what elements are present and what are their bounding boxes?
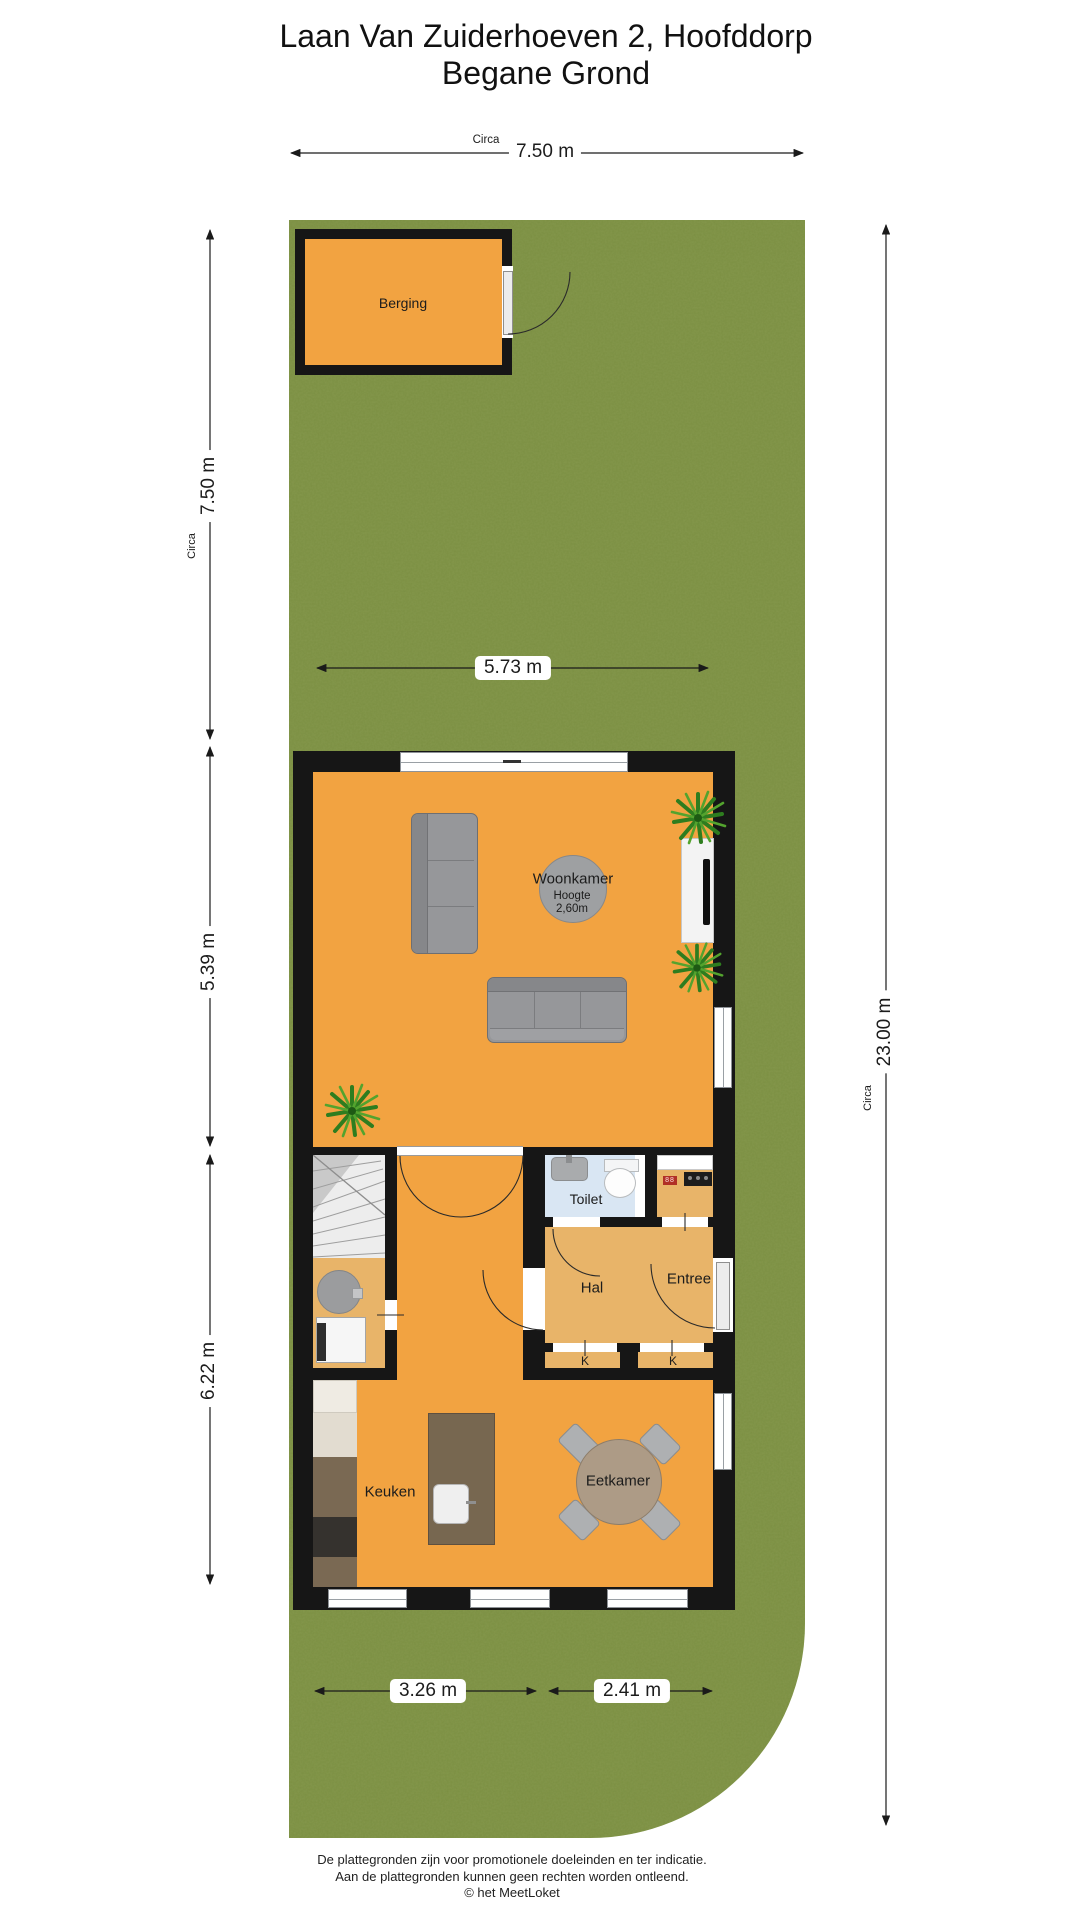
- window-bottom-3: [607, 1589, 688, 1608]
- front-door-leaf: [716, 1262, 730, 1330]
- staircase: [313, 1155, 385, 1258]
- kast-right-door-gap: [640, 1343, 704, 1352]
- sofa-backrest: [488, 978, 626, 992]
- disclaimer-line-1: De plattegronden zijn voor promotionele …: [0, 1852, 1024, 1869]
- kitchen-counter-wood: [313, 1457, 357, 1517]
- room-label-kast-right: K: [669, 1354, 677, 1368]
- window-frame-line: [471, 1599, 549, 1600]
- staircase-steps: [313, 1155, 385, 1258]
- room-label-toilet: Toilet: [570, 1191, 603, 1207]
- boiler-valve: [352, 1288, 363, 1299]
- sofa-cushion-line: [580, 992, 581, 1030]
- tv-cabinet: [681, 838, 714, 943]
- window-frame-line: [723, 1394, 724, 1469]
- washer-closet-door-gap: [385, 1300, 397, 1330]
- floor-plan-page: Laan Van Zuiderhoeven 2, Hoofddorp Began…: [0, 0, 1080, 1920]
- double-door-gap: [397, 1146, 523, 1156]
- dim-garden-depth-circa: Circa: [186, 530, 198, 562]
- dim-kitchen-width-value: 3.26 m: [390, 1679, 466, 1703]
- room-label-berging: Berging: [379, 295, 427, 311]
- disclaimer: De plattegronden zijn voor promotionele …: [0, 1852, 1024, 1902]
- plant-icon: [668, 786, 728, 848]
- window-bottom-1: [328, 1589, 407, 1608]
- dim-plot-depth-circa: Circa: [862, 1082, 874, 1114]
- meter-door-gap: [662, 1217, 708, 1227]
- window-bottom-2: [470, 1589, 550, 1608]
- kitchen-cooktop: [313, 1517, 357, 1557]
- window-top-living: [400, 752, 628, 772]
- sofa-seat: [490, 1028, 624, 1040]
- copyright: © het MeetLoket: [0, 1885, 1024, 1902]
- kitchen-island: [428, 1413, 495, 1545]
- dim-top-value: 7.50 m: [509, 141, 581, 163]
- room-label-kast-left: K: [581, 1354, 589, 1368]
- sink-faucet: [566, 1155, 572, 1163]
- room-label-keuken: Keuken: [365, 1484, 416, 1501]
- sofa-backrest: [412, 814, 428, 953]
- window-slider-mark: [503, 760, 521, 763]
- dim-plot-depth-value: 23.00 m: [874, 991, 896, 1074]
- plant-icon: [322, 1079, 382, 1141]
- disclaimer-line-2: Aan de plattegronden kunnen geen rechten…: [0, 1869, 1024, 1886]
- window-frame-line: [608, 1599, 687, 1600]
- toilet-door-gap: [553, 1217, 600, 1227]
- sofa-cushion-line: [428, 906, 474, 907]
- sofa-cushion-line: [428, 860, 474, 861]
- window-frame-line: [329, 1599, 406, 1600]
- washer-detail: [317, 1323, 326, 1361]
- sofa-cushion-line: [534, 992, 535, 1030]
- room-label-hal: Hal: [581, 1280, 604, 1297]
- dim-garden-depth-value: 7.50 m: [198, 450, 220, 522]
- room-label-hoogte: Hoogte: [553, 890, 590, 902]
- room-label-hoogte-value: 2,60m: [556, 903, 588, 915]
- toilet-sink: [551, 1157, 588, 1181]
- toilet-bowl: [604, 1168, 636, 1198]
- room-label-entree: Entree: [667, 1271, 711, 1288]
- washing-machine: [316, 1317, 366, 1363]
- kast-left-door-gap: [553, 1343, 617, 1352]
- sofa-vertical: [411, 813, 478, 954]
- shed-door-leaf: [503, 271, 513, 335]
- tv-screen: [703, 859, 710, 925]
- dim-kitchen-depth-value: 6.22 m: [198, 1335, 220, 1407]
- room-label-woonkamer: Woonkamer: [533, 871, 614, 888]
- window-right-living: [714, 1007, 732, 1088]
- kitchen-counter-white: [313, 1380, 357, 1413]
- hal-door-gap: [523, 1268, 545, 1330]
- kitchen-counter-wood-2: [313, 1557, 357, 1587]
- dim-living-depth-value: 5.39 m: [198, 926, 220, 998]
- window-frame-line: [723, 1008, 724, 1087]
- window-right-dining: [714, 1393, 732, 1470]
- address-title: Laan Van Zuiderhoeven 2, Hoofddorp: [0, 18, 1080, 55]
- room-label-eetkamer: Eetkamer: [586, 1473, 650, 1490]
- island-sink: [433, 1484, 469, 1524]
- floor-title: Begane Grond: [0, 55, 1080, 92]
- meter-cupboard-top: [657, 1155, 713, 1170]
- page-title: Laan Van Zuiderhoeven 2, Hoofddorp Began…: [0, 18, 1080, 92]
- dim-top-circa: Circa: [473, 134, 500, 146]
- fuse-panel-icon: [684, 1172, 712, 1186]
- dim-dining-width-value: 2.41 m: [594, 1679, 670, 1703]
- kitchen-counter-cream: [313, 1413, 357, 1457]
- plant-icon: [669, 938, 725, 996]
- electric-meter-icon: 88: [663, 1176, 677, 1185]
- dim-garden-width-value: 5.73 m: [475, 656, 551, 680]
- sofa-horizontal: [487, 977, 627, 1043]
- sink-faucet: [466, 1501, 476, 1504]
